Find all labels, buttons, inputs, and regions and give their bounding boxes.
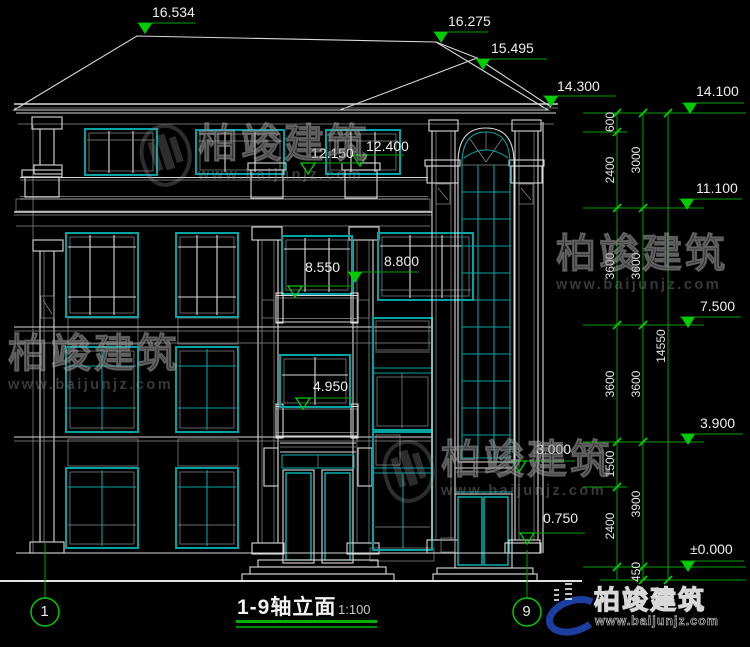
axis-bubble-9: 9 (514, 599, 539, 624)
elevation-marker (295, 398, 353, 409)
elevation-label: 8.800 (384, 254, 419, 269)
brand-website: www.baijunjz.com (595, 614, 719, 628)
elevation-label: 0.750 (543, 511, 578, 526)
dimension-value: 2400 (603, 513, 617, 540)
elevation-label: 7.500 (700, 299, 735, 314)
elevation-label: 16.534 (152, 5, 195, 20)
elevation-marker (300, 163, 360, 174)
drawing-scale: 1:100 (338, 602, 371, 617)
elevation-marker (352, 155, 404, 166)
dimension-value: 2400 (603, 157, 617, 184)
elevation-marker (680, 434, 743, 445)
elevation-marker (682, 103, 744, 114)
elevation-label: ±0.000 (690, 542, 733, 557)
dimension-value: 3000 (629, 147, 643, 174)
elevation-marker (137, 23, 195, 34)
dimension-value: 3600 (603, 253, 617, 280)
elevation-label: 12.400 (366, 139, 409, 154)
dimension-value: 3600 (603, 371, 617, 398)
dimension-value: 600 (603, 112, 617, 132)
elevation-marker (543, 96, 616, 107)
dimension-value: 14550 (654, 329, 668, 362)
elevation-label: 15.495 (491, 41, 534, 56)
elevation-label: 8.550 (305, 260, 340, 275)
dimension-annotations (0, 0, 750, 647)
elevation-label: 14.300 (557, 79, 600, 94)
elevation-marker (347, 272, 419, 283)
brand-logo-icon (538, 576, 596, 638)
dimension-value: 3900 (629, 491, 643, 518)
title-underline (236, 620, 377, 623)
elevation-label: 16.275 (448, 14, 491, 29)
elevation-label: 4.950 (313, 379, 348, 394)
elevation-label: 3.900 (700, 416, 735, 431)
elevation-label: 14.100 (696, 84, 739, 99)
elevation-label: 11.100 (696, 181, 738, 196)
elevation-marker (475, 59, 547, 70)
dimension-value: 3600 (629, 371, 643, 398)
elevation-marker (433, 32, 488, 43)
elevation-label: 12.150 (311, 146, 354, 161)
axis-bubble-1: 1 (32, 599, 57, 624)
dimension-value: 3600 (629, 253, 643, 280)
brand-name: 柏竣建筑 (594, 580, 706, 617)
elevation-marker (287, 286, 353, 297)
drawing-title: 1-9轴立面 (237, 591, 336, 621)
dimension-value: 1500 (603, 451, 617, 478)
cad-canvas: 1 9 1-9轴立面 1:100 柏竣建筑 www.baijunjz.com 1… (0, 0, 750, 647)
elevation-marker (680, 317, 741, 328)
dimension-value: 450 (629, 562, 643, 582)
elevation-marker (511, 461, 575, 472)
elevation-label: 3.000 (536, 442, 571, 457)
title-underline-2 (236, 626, 377, 628)
elevation-marker (519, 533, 585, 544)
